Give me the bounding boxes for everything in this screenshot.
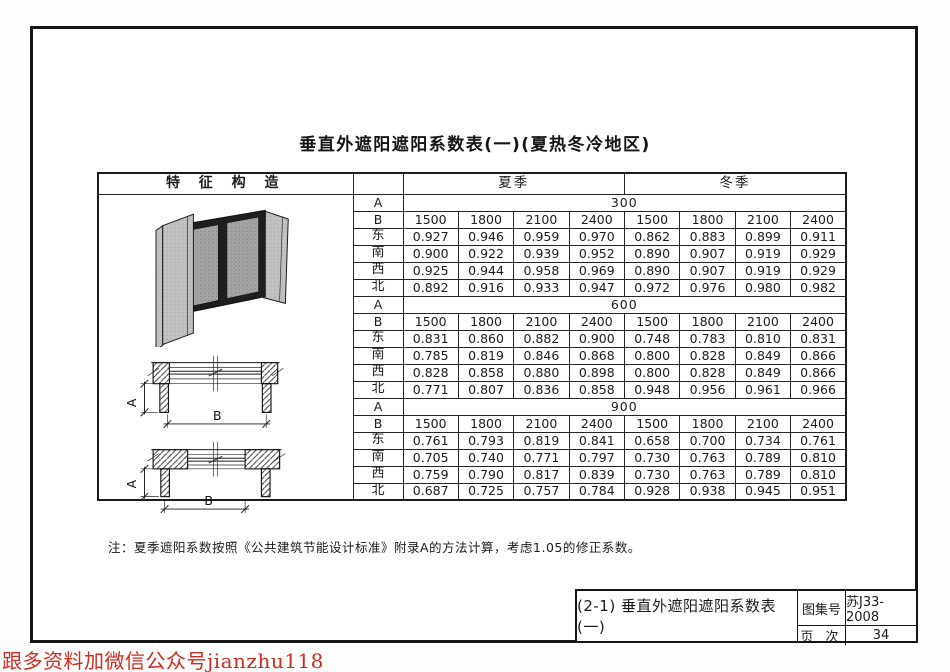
coefficient-value: 0.938 — [680, 483, 735, 500]
coefficient-value: 0.882 — [514, 330, 569, 347]
coefficient-value: 0.828 — [680, 347, 735, 364]
coefficient-value: 0.700 — [680, 432, 735, 449]
plan-detail-thick-wall: A B — [110, 442, 340, 526]
coefficient-value: 0.849 — [735, 364, 790, 381]
coefficient-value: 0.945 — [735, 483, 790, 500]
left-wall-section — [153, 449, 187, 468]
coefficient-value: 0.725 — [458, 483, 513, 500]
coefficient-value: 0.907 — [680, 245, 735, 262]
b-value: 2100 — [514, 415, 569, 432]
dim-label-a: A — [124, 399, 139, 408]
b-row-label: B — [353, 211, 403, 228]
coefficient-value: 0.890 — [625, 262, 680, 279]
coefficient-value: 0.883 — [680, 228, 735, 245]
b-value: 2100 — [735, 211, 790, 228]
direction-label: 北 — [353, 381, 403, 398]
coefficient-value: 0.763 — [680, 449, 735, 466]
dim-label-b: B — [204, 493, 213, 508]
coefficient-value: 0.828 — [403, 364, 458, 381]
b-value: 2100 — [735, 313, 790, 330]
left-fin-edge — [156, 226, 163, 348]
b-value: 1800 — [458, 313, 513, 330]
direction-label: 南 — [353, 347, 403, 364]
coefficient-value: 0.919 — [735, 262, 790, 279]
coefficient-value: 0.922 — [458, 245, 513, 262]
direction-label: 东 — [353, 432, 403, 449]
b-value: 2400 — [791, 313, 846, 330]
b-row-label: B — [353, 415, 403, 432]
coefficient-value: 0.734 — [735, 432, 790, 449]
coefficient-value: 0.789 — [735, 466, 790, 483]
scanned-document-page: 垂直外遮阳遮阳系数表(一)(夏热冬冷地区) 特 征 构 造 夏季 冬季 A300… — [0, 0, 950, 672]
left-fin-plan — [161, 469, 170, 497]
coefficient-value: 0.966 — [791, 381, 846, 398]
coefficient-value: 0.980 — [735, 279, 790, 296]
title-block: (2-1) 垂直外遮阳遮阳系数表(一) 图集号 苏J33-2008 页 次 34 — [575, 589, 918, 643]
coefficient-value: 0.831 — [403, 330, 458, 347]
coefficient-value: 0.797 — [569, 449, 624, 466]
a-value: 300 — [403, 194, 846, 211]
a-row-label: A — [353, 296, 403, 313]
right-fin-plan — [262, 384, 271, 413]
direction-label: 南 — [353, 449, 403, 466]
dim-label-b: B — [213, 409, 222, 424]
coefficient-value: 0.800 — [625, 364, 680, 381]
b-value: 2100 — [514, 313, 569, 330]
watermark-text: 跟多资料加微信公众号jianzhu118 — [2, 645, 324, 672]
coefficient-value: 0.892 — [403, 279, 458, 296]
figure-number-label: (2-1) 垂直外遮阳遮阳系数表(一) — [577, 591, 798, 641]
right-fin-plan — [261, 469, 270, 497]
coefficient-value: 0.899 — [735, 228, 790, 245]
coefficient-value: 0.858 — [569, 381, 624, 398]
coefficient-value: 0.969 — [569, 262, 624, 279]
dim-label-a: A — [124, 479, 139, 488]
coefficient-value: 0.687 — [403, 483, 458, 500]
coefficient-value: 0.944 — [458, 262, 513, 279]
coefficient-value: 0.925 — [403, 262, 458, 279]
coefficient-value: 0.771 — [514, 449, 569, 466]
direction-label: 西 — [353, 466, 403, 483]
coefficient-value: 0.800 — [625, 347, 680, 364]
b-value: 1500 — [403, 313, 458, 330]
coefficient-value: 0.858 — [458, 364, 513, 381]
feature-column-header: 特 征 构 造 — [98, 173, 353, 194]
b-value: 2400 — [569, 415, 624, 432]
page-number-label: 页 次 — [798, 626, 846, 645]
b-value: 1800 — [458, 415, 513, 432]
coefficient-value: 0.836 — [514, 381, 569, 398]
b-value: 1800 — [680, 313, 735, 330]
coefficient-value: 0.866 — [791, 364, 846, 381]
coefficient-value: 0.705 — [403, 449, 458, 466]
b-value: 1500 — [403, 415, 458, 432]
coefficient-value: 0.860 — [458, 330, 513, 347]
coefficient-value: 0.730 — [625, 466, 680, 483]
a-row-label: A — [353, 194, 403, 211]
coefficient-value: 0.951 — [791, 483, 846, 500]
coefficient-value: 0.890 — [625, 245, 680, 262]
coefficient-value: 0.916 — [458, 279, 513, 296]
coefficient-value: 0.841 — [569, 432, 624, 449]
coefficient-value: 0.658 — [625, 432, 680, 449]
coefficient-value: 0.927 — [403, 228, 458, 245]
coefficient-value: 0.785 — [403, 347, 458, 364]
direction-label: 西 — [353, 364, 403, 381]
coefficient-value: 0.846 — [514, 347, 569, 364]
coefficient-value: 0.783 — [680, 330, 735, 347]
coefficient-value: 0.919 — [735, 245, 790, 262]
coefficient-value: 0.819 — [458, 347, 513, 364]
footnote: 注：夏季遮阳系数按照《公共建筑节能设计标准》附录A的方法计算，考虑1.05的修正… — [108, 537, 641, 556]
coefficient-value: 0.761 — [791, 432, 846, 449]
b-value: 1500 — [625, 415, 680, 432]
coefficient-value: 0.771 — [403, 381, 458, 398]
coefficient-value: 0.784 — [569, 483, 624, 500]
a-row-label: A — [353, 398, 403, 415]
coefficient-value: 0.880 — [514, 364, 569, 381]
perspective-drawing-window-with-vertical-fins — [99, 196, 351, 347]
b-value: 2400 — [569, 211, 624, 228]
coefficient-value: 0.959 — [514, 228, 569, 245]
left-fin-plan — [160, 384, 169, 413]
coefficient-value: 0.972 — [625, 279, 680, 296]
direction-label: 南 — [353, 245, 403, 262]
direction-label: 北 — [353, 483, 403, 500]
b-value: 2400 — [791, 211, 846, 228]
page-number-value: 34 — [846, 626, 916, 645]
plan-detail-thin-wall: A B — [110, 353, 340, 439]
left-wall-section — [153, 363, 169, 384]
coefficient-value: 0.907 — [680, 262, 735, 279]
a-value: 900 — [403, 398, 846, 415]
b-value: 2400 — [791, 415, 846, 432]
coefficient-value: 0.929 — [791, 245, 846, 262]
b-value: 1500 — [625, 313, 680, 330]
coefficient-value: 0.740 — [458, 449, 513, 466]
right-pane — [227, 217, 259, 298]
winter-header: 冬季 — [625, 173, 847, 194]
b-value: 1800 — [680, 415, 735, 432]
b-row-label: B — [353, 313, 403, 330]
coefficient-value: 0.956 — [680, 381, 735, 398]
coefficient-value: 0.761 — [403, 432, 458, 449]
coefficient-value: 0.789 — [735, 449, 790, 466]
coefficient-value: 0.748 — [625, 330, 680, 347]
b-value: 2400 — [569, 313, 624, 330]
coefficient-value: 0.817 — [514, 466, 569, 483]
a-value: 600 — [403, 296, 846, 313]
coefficient-value: 0.961 — [735, 381, 790, 398]
coefficient-value: 0.831 — [791, 330, 846, 347]
coefficient-value: 0.958 — [514, 262, 569, 279]
b-value: 1800 — [680, 211, 735, 228]
coefficient-value: 0.976 — [680, 279, 735, 296]
left-fin — [163, 214, 194, 344]
coefficient-value: 0.970 — [569, 228, 624, 245]
right-wall-section — [245, 449, 279, 468]
coefficient-value: 0.759 — [403, 466, 458, 483]
coefficient-value: 0.900 — [569, 330, 624, 347]
coefficient-value: 0.982 — [791, 279, 846, 296]
coefficient-value: 0.828 — [680, 364, 735, 381]
coefficient-value: 0.952 — [569, 245, 624, 262]
feature-construction-drawings: A B — [99, 196, 351, 526]
coefficient-value: 0.810 — [791, 466, 846, 483]
coefficient-value: 0.929 — [791, 262, 846, 279]
coefficient-value: 0.763 — [680, 466, 735, 483]
coefficient-value: 0.810 — [735, 330, 790, 347]
document-title: 垂直外遮阳遮阳系数表(一)(夏热冬冷地区) — [0, 130, 950, 155]
season-spacer-cell — [353, 173, 403, 194]
coefficient-value: 0.939 — [514, 245, 569, 262]
right-fin — [263, 211, 288, 303]
coefficient-value: 0.793 — [458, 432, 513, 449]
b-value: 1800 — [458, 211, 513, 228]
direction-label: 东 — [353, 228, 403, 245]
atlas-number-value: 苏J33-2008 — [846, 591, 916, 626]
b-value: 1500 — [625, 211, 680, 228]
coefficient-value: 0.928 — [625, 483, 680, 500]
right-wall-section — [261, 363, 277, 384]
coefficient-value: 0.810 — [791, 449, 846, 466]
coefficient-value: 0.819 — [514, 432, 569, 449]
coefficient-value: 0.866 — [791, 347, 846, 364]
coefficient-value: 0.807 — [458, 381, 513, 398]
coefficient-value: 0.900 — [403, 245, 458, 262]
b-value: 2100 — [735, 415, 790, 432]
coefficient-value: 0.868 — [569, 347, 624, 364]
coefficient-value: 0.946 — [458, 228, 513, 245]
coefficient-value: 0.790 — [458, 466, 513, 483]
coefficient-value: 0.911 — [791, 228, 846, 245]
coefficient-value: 0.948 — [625, 381, 680, 398]
direction-label: 东 — [353, 330, 403, 347]
direction-label: 北 — [353, 279, 403, 296]
atlas-number-label: 图集号 — [798, 591, 846, 626]
b-value: 1500 — [403, 211, 458, 228]
coefficient-value: 0.730 — [625, 449, 680, 466]
summer-header: 夏季 — [403, 173, 625, 194]
direction-label: 西 — [353, 262, 403, 279]
coefficient-value: 0.947 — [569, 279, 624, 296]
coefficient-value: 0.898 — [569, 364, 624, 381]
coefficient-value: 0.933 — [514, 279, 569, 296]
coefficient-value: 0.757 — [514, 483, 569, 500]
coefficient-value: 0.862 — [625, 228, 680, 245]
coefficient-value: 0.839 — [569, 466, 624, 483]
b-value: 2100 — [514, 211, 569, 228]
coefficient-value: 0.849 — [735, 347, 790, 364]
